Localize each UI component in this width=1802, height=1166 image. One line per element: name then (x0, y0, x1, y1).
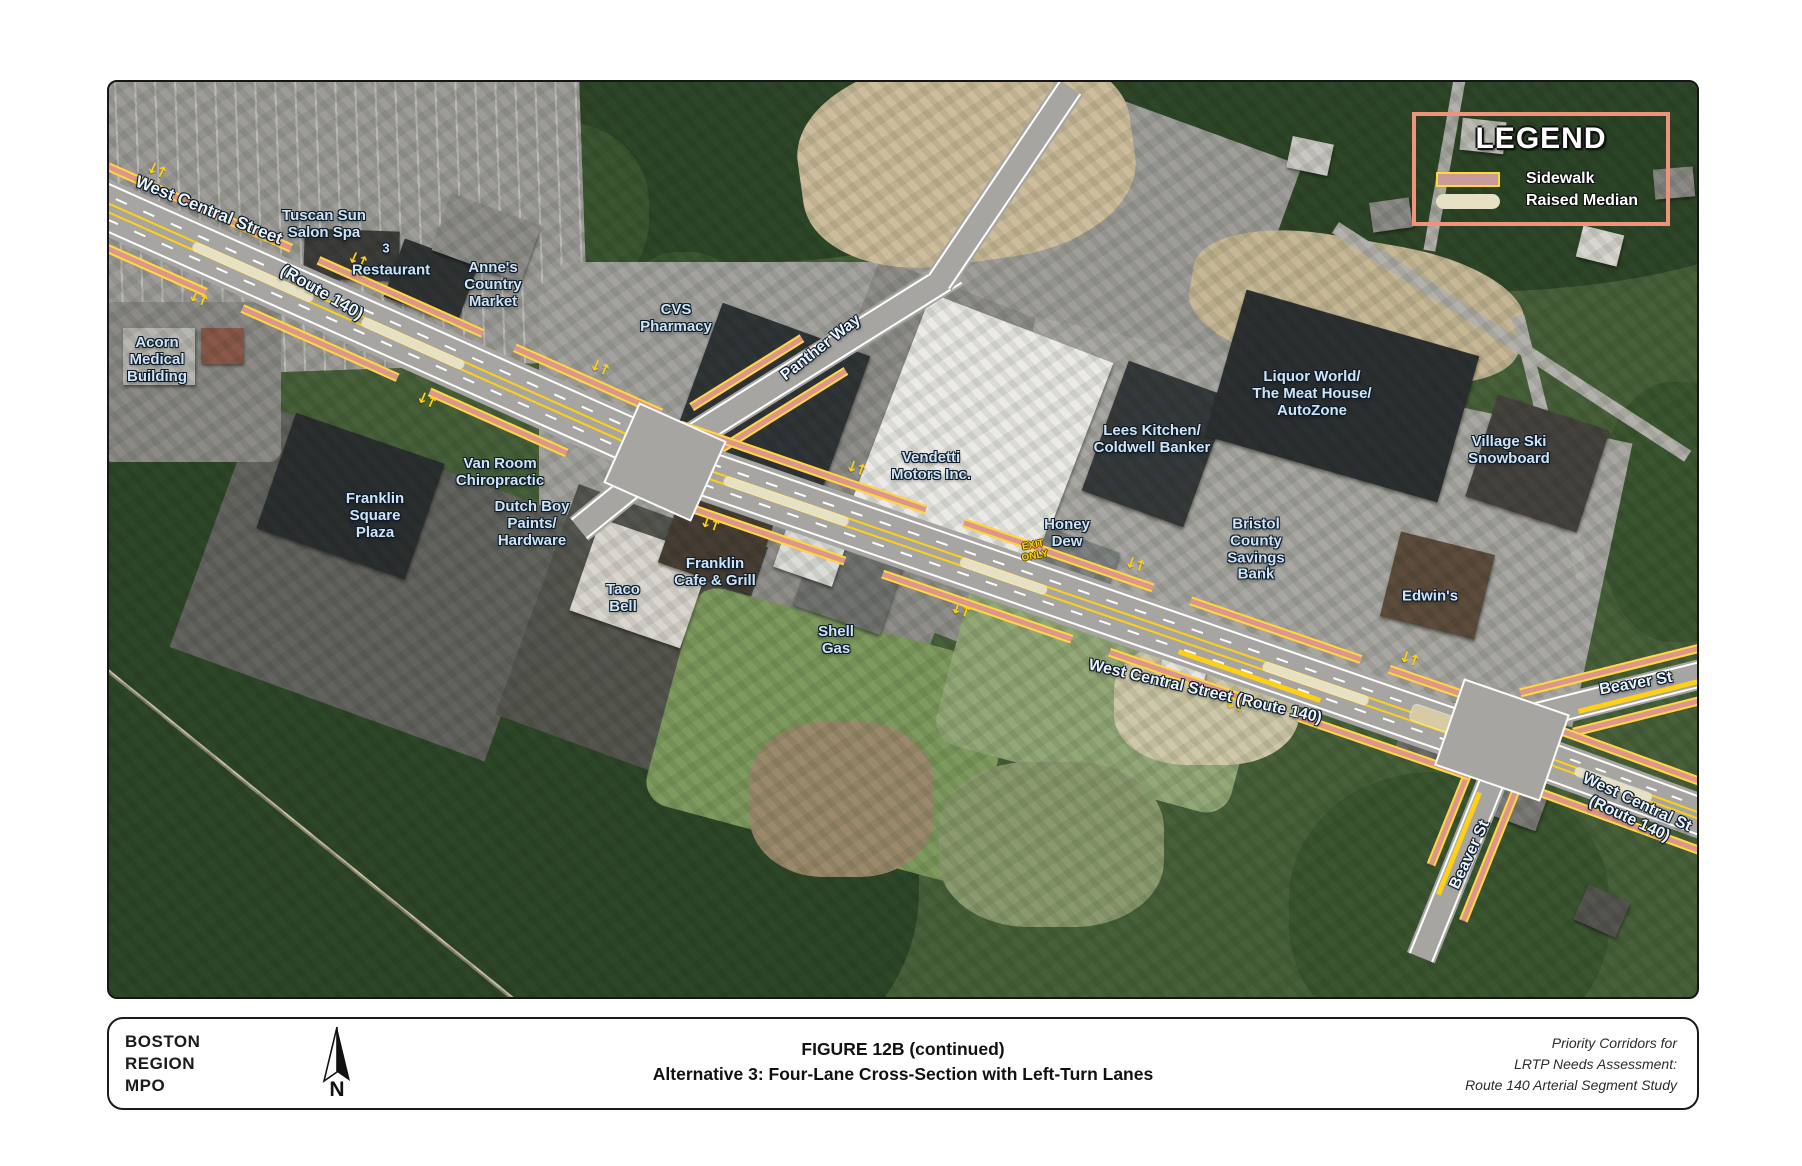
map-label-west-central-street-tl: West Central Street (133, 172, 285, 248)
map-label-franklin-square-plaza: FranklinSquarePlaza (346, 491, 404, 541)
map-label-liquor-world-meat-house-autozone: Liquor World/The Meat House/AutoZone (1252, 369, 1371, 419)
map-label-edwins: Edwin's (1402, 589, 1458, 606)
map-label-franklin-cafe-grill: FranklinCafe & Grill (674, 556, 756, 590)
raised-median-swatch-icon (1436, 194, 1500, 209)
legend-title: LEGEND (1416, 122, 1666, 156)
map-label-panther-way: Panther Way (778, 311, 865, 384)
figure-subtitle: Alternative 3: Four-Lane Cross-Section w… (109, 1064, 1697, 1085)
map-label-restaurant-3: 3 (382, 242, 389, 257)
map-label-bristol-county-savings-bank: BristolCountySavingsBank (1227, 516, 1285, 583)
legend-item-label: Raised Median (1526, 192, 1638, 210)
title-block: BOSTON REGION MPO N FIGURE 12B (continue… (107, 1017, 1699, 1110)
credit-line: Route 140 Arterial Segment Study (1465, 1075, 1677, 1096)
map-label-tuscan-sun-salon-spa: Tuscan SunSalon Spa (282, 208, 366, 242)
map-label-van-room-chiropractic: Van RoomChiropractic (456, 456, 544, 490)
aerial-map: ↓↑ ↓↑ ↓↑ ↓↑ ↓↑ ↓↑ (107, 80, 1699, 999)
credit-line: LRTP Needs Assessment: (1465, 1054, 1677, 1075)
map-label-dutch-boy-paints-hardware: Dutch BoyPaints/Hardware (495, 499, 570, 549)
figure-number: FIGURE 12B (continued) (109, 1039, 1697, 1060)
map-label-annes-country-market: Anne'sCountryMarket (464, 260, 522, 310)
map-label-west-central-street-mid: West Central Street (Route 140) (1087, 656, 1324, 727)
legend-item-sidewalk: Sidewalk (1436, 170, 1594, 188)
map-label-vendetti-motors: VendettiMotors Inc. (891, 450, 971, 484)
map-label-cvs-pharmacy: CVSPharmacy (640, 302, 712, 336)
map-label-beaver-st-ne: Beaver St (1598, 669, 1674, 699)
credit-line: Priority Corridors for (1465, 1033, 1677, 1054)
study-credit: Priority Corridors for LRTP Needs Assess… (1465, 1033, 1677, 1096)
legend-box: LEGEND Sidewalk Raised Median (1412, 112, 1670, 226)
map-label-lees-kitchen-coldwell-banker: Lees Kitchen/Coldwell Banker (1094, 423, 1211, 457)
map-label-taco-bell: TacoBell (606, 582, 640, 616)
sidewalk-swatch-icon (1436, 172, 1500, 187)
map-label-shell-gas: ShellGas (818, 624, 854, 658)
figure-page: ↓↑ ↓↑ ↓↑ ↓↑ ↓↑ ↓↑ (0, 0, 1802, 1166)
figure-title: FIGURE 12B (continued) Alternative 3: Fo… (109, 1039, 1697, 1085)
legend-item-label: Sidewalk (1526, 170, 1594, 188)
map-label-honey-dew: HoneyDew (1044, 517, 1090, 551)
map-label-village-ski-snowboard: Village SkiSnowboard (1468, 434, 1550, 468)
legend-item-raised-median: Raised Median (1436, 192, 1638, 210)
map-label-west-central-st-right: West Central St(Route 140) (1572, 770, 1694, 852)
map-label-restaurant: Restaurant (352, 263, 430, 280)
map-label-acorn-medical-building: AcornMedicalBuilding (127, 335, 187, 385)
map-label-beaver-st-s: Beaver St (1446, 818, 1493, 892)
